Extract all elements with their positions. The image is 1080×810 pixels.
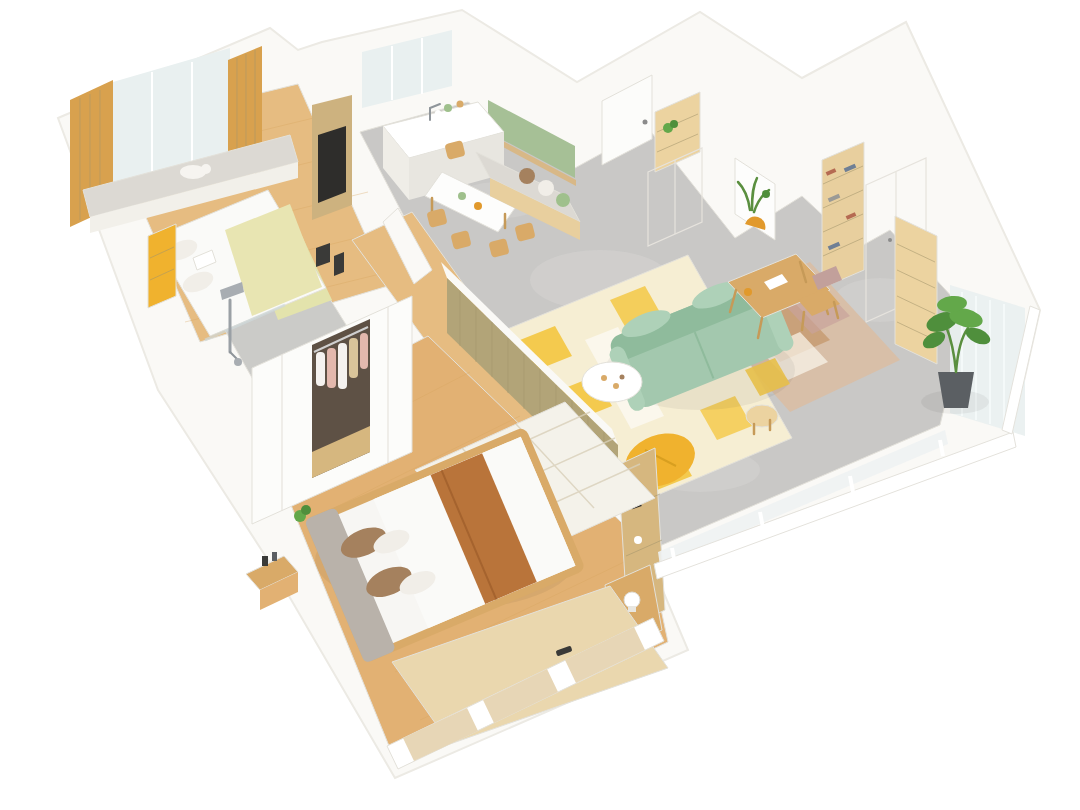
- desk-lamp: [744, 288, 752, 296]
- coffee-table: [582, 362, 642, 402]
- yellow-shelf: [148, 224, 176, 308]
- tv-screen: [318, 126, 346, 203]
- plant-pot: [938, 372, 974, 408]
- table-lamp-base: [628, 606, 636, 612]
- entry-door-handle: [643, 120, 648, 125]
- artwork-dot: [762, 190, 770, 198]
- apartment-render: [0, 0, 1080, 810]
- bookshelf: [822, 142, 864, 288]
